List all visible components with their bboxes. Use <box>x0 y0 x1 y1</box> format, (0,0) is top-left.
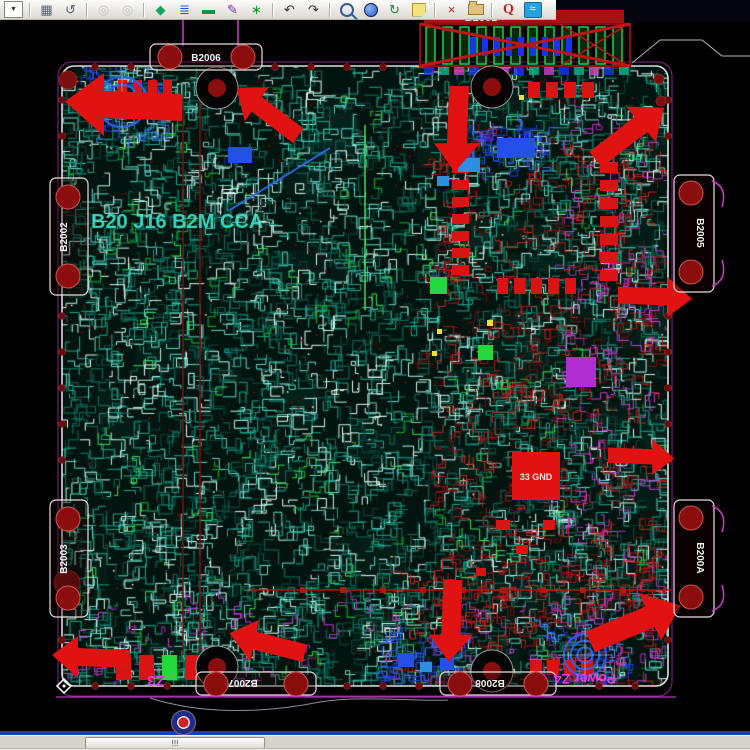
component-pad <box>452 214 469 224</box>
red-trace-tick <box>500 587 506 593</box>
connector-label: B2006 <box>191 53 221 64</box>
edge-connector-b2002[interactable]: B2002 <box>50 178 88 295</box>
component[interactable] <box>430 277 447 294</box>
app-logo <box>171 710 196 735</box>
connector-pad <box>231 45 255 69</box>
component-pad <box>600 234 618 245</box>
toolbar-separator <box>272 3 274 17</box>
edge-pad <box>344 683 351 690</box>
toolbar-separator <box>29 3 31 17</box>
edge-pad <box>272 64 279 71</box>
connector-label: B2003 <box>59 544 70 574</box>
component-pad <box>452 197 469 207</box>
edge-pad <box>308 64 315 71</box>
edge-connector-b2005[interactable]: B2005 <box>674 175 724 292</box>
component[interactable] <box>476 568 486 576</box>
component-pad <box>582 82 594 98</box>
folder-shape <box>468 4 484 15</box>
edge-pad <box>92 683 99 690</box>
edge-bit <box>604 67 614 75</box>
dropdown-arrow-icon: ▼ <box>4 1 23 18</box>
connector-pad <box>679 260 703 284</box>
component-pad <box>564 82 576 98</box>
toolbar-separator <box>86 3 88 17</box>
silkscreen-text: B20 J16 B2M CCA <box>91 211 263 233</box>
sheet-icon[interactable]: ▦ <box>36 1 57 18</box>
delete-doc-icon[interactable]: × <box>441 1 462 18</box>
component[interactable] <box>398 653 414 667</box>
toolbar-separator <box>329 3 331 17</box>
edge-pad <box>59 133 66 140</box>
component-pad <box>548 278 559 294</box>
red-trace-tick <box>380 587 386 593</box>
connector-pad <box>679 181 703 205</box>
waveform-icon[interactable]: ≈ <box>522 1 543 18</box>
component[interactable] <box>420 662 432 672</box>
zoom-icon[interactable] <box>336 1 357 18</box>
component[interactable] <box>440 658 454 670</box>
board-icon[interactable]: ▬ <box>198 1 219 18</box>
connector-pad <box>679 585 703 609</box>
connector-pad <box>158 45 182 69</box>
layer-list-dropdown[interactable]: ▼ <box>3 1 24 18</box>
refresh-icon[interactable]: ↻ <box>384 1 405 18</box>
component[interactable] <box>432 351 437 356</box>
connector-pad <box>204 672 228 696</box>
edge-bit <box>439 67 449 75</box>
main-toolbar: ▼▦↺◎◎◆≣▬✎∗↶↷↻×Q≈ <box>0 0 556 20</box>
connector-blob <box>552 10 624 24</box>
component-pad <box>452 248 469 258</box>
component-pad <box>452 231 469 241</box>
wave-shape: ≈ <box>524 2 542 18</box>
component[interactable] <box>497 138 535 158</box>
component[interactable] <box>516 545 528 554</box>
red-trace-tick <box>300 587 306 593</box>
connector-pad <box>56 185 80 209</box>
edge-bit <box>454 67 464 75</box>
connector-pad <box>524 672 548 696</box>
connector-pad <box>56 264 80 288</box>
edge-pad <box>665 385 672 392</box>
edge-connector-b2006[interactable]: B2006 <box>150 44 262 70</box>
corner-pad <box>654 74 664 84</box>
mounting-hole[interactable] <box>196 67 238 109</box>
edge-pad <box>59 349 66 356</box>
camera-icon[interactable]: ◎ <box>93 1 114 18</box>
component[interactable] <box>496 520 510 530</box>
connector-pad <box>448 672 472 696</box>
corner-pad <box>59 71 77 89</box>
resistor-row-top[interactable] <box>528 82 594 98</box>
edge-bit <box>574 67 584 75</box>
board-corner-lead-line <box>632 40 750 63</box>
region-z3-label: Z3 <box>147 672 165 689</box>
toolbar-separator <box>143 3 145 17</box>
connector-label: B200A <box>694 542 705 573</box>
hole-center <box>208 79 226 97</box>
hole-center <box>483 78 501 96</box>
folder-icon[interactable] <box>465 1 486 18</box>
edge-pad <box>632 683 639 690</box>
component-pad <box>565 278 576 294</box>
edge-bit <box>619 67 629 75</box>
pen-icon[interactable]: ✎ <box>222 1 243 18</box>
edge-pad <box>59 637 66 644</box>
undo-icon[interactable]: ↶ <box>279 1 300 18</box>
edge-connector-b2003[interactable]: B2003 <box>50 500 88 617</box>
shapes-icon[interactable]: ◆ <box>150 1 171 18</box>
pcb-editor-window: B2002B2003B2005B200AB2006B2007B2008B2001… <box>0 0 750 750</box>
edge-bit <box>559 67 569 75</box>
component[interactable] <box>566 357 596 387</box>
note-shape <box>412 3 426 17</box>
rotate-icon[interactable]: ↺ <box>60 1 81 18</box>
edge-connector-b2008[interactable]: B2008 <box>440 672 556 696</box>
component-pad <box>452 180 469 190</box>
mounting-hole[interactable] <box>471 66 513 108</box>
edge-pad <box>665 349 672 356</box>
edge-bit <box>529 67 539 75</box>
edge-pad <box>92 64 99 71</box>
query-icon[interactable]: Q <box>498 1 519 18</box>
component-pad <box>452 265 469 275</box>
edge-pad <box>665 133 672 140</box>
component-pad <box>497 278 508 294</box>
toolbar-separator <box>434 3 436 17</box>
edge-pad <box>380 683 387 690</box>
edge-connector-b200a[interactable]: B200A <box>674 500 724 617</box>
component-pad <box>600 198 618 209</box>
edge-connector-b2007[interactable]: B2007 <box>196 672 316 696</box>
resistor-row-bottom[interactable] <box>497 278 576 294</box>
edge-pad <box>128 683 135 690</box>
pcb-overlay: B2002B2003B2005B200AB2006B2007B2008B2001… <box>0 0 750 731</box>
component[interactable] <box>228 147 252 163</box>
edge-pad <box>128 64 135 71</box>
red-trace-tick <box>540 587 546 593</box>
red-arrow-marker[interactable] <box>429 580 473 662</box>
connector-label: B2002 <box>59 222 70 252</box>
edge-bit <box>514 67 524 75</box>
connector-label: B2005 <box>694 218 705 248</box>
magnifier-glass <box>340 3 354 17</box>
red-trace-tick <box>580 587 586 593</box>
layers-icon[interactable]: ≣ <box>174 1 195 18</box>
bottom-curve-line <box>150 698 448 711</box>
component[interactable] <box>519 95 524 100</box>
edge-bit <box>424 67 434 75</box>
edge-pad <box>59 421 66 428</box>
note-icon[interactable] <box>408 1 429 18</box>
component[interactable] <box>437 329 442 334</box>
edge-pad <box>59 385 66 392</box>
component[interactable] <box>478 345 493 360</box>
component-pad <box>528 82 540 98</box>
red-trace-tick <box>340 587 346 593</box>
component-pad <box>531 278 542 294</box>
gnd-pad-label: 33 GND <box>520 472 553 482</box>
edge-pad <box>59 457 66 464</box>
component-pad <box>600 180 618 191</box>
edge-bit <box>544 67 554 75</box>
globe-icon[interactable] <box>360 1 381 18</box>
connector-label: B2008 <box>475 677 505 688</box>
component-pad <box>600 270 618 281</box>
connector-pin <box>426 27 435 64</box>
region-z4-label: Power Z4 <box>554 671 616 687</box>
origin-dot <box>63 685 66 688</box>
red-arrow-marker[interactable] <box>608 439 674 475</box>
edge-pad <box>59 313 66 320</box>
connector-pad <box>679 506 703 530</box>
component[interactable] <box>487 320 493 326</box>
red-trace-tick <box>620 587 626 593</box>
red-trace-tick <box>420 587 426 593</box>
connector-pin-blue <box>470 37 476 56</box>
component-pad <box>600 216 618 227</box>
corner-pad <box>656 96 666 106</box>
edge-pad <box>665 421 672 428</box>
toolbar-separator <box>491 3 493 17</box>
edge-pad <box>344 64 351 71</box>
edge-pad <box>416 683 423 690</box>
component-pad <box>514 278 525 294</box>
connector-pad <box>56 507 80 531</box>
edge-pad <box>665 637 672 644</box>
component[interactable] <box>437 176 449 186</box>
connector-label: B2007 <box>228 677 258 688</box>
component[interactable] <box>543 520 555 530</box>
globe-shape <box>364 3 378 17</box>
edge-pad <box>380 64 387 71</box>
camera2-icon[interactable]: ◎ <box>117 1 138 18</box>
redo-icon[interactable]: ↷ <box>303 1 324 18</box>
component-pad <box>600 252 618 263</box>
connector-pad <box>56 586 80 610</box>
component-icon[interactable]: ∗ <box>246 1 267 18</box>
status-bar: !!! <box>0 735 750 750</box>
connector-pad <box>284 672 308 696</box>
component-pad <box>546 82 558 98</box>
edge-bit <box>589 67 599 75</box>
edge-pad <box>59 97 66 104</box>
